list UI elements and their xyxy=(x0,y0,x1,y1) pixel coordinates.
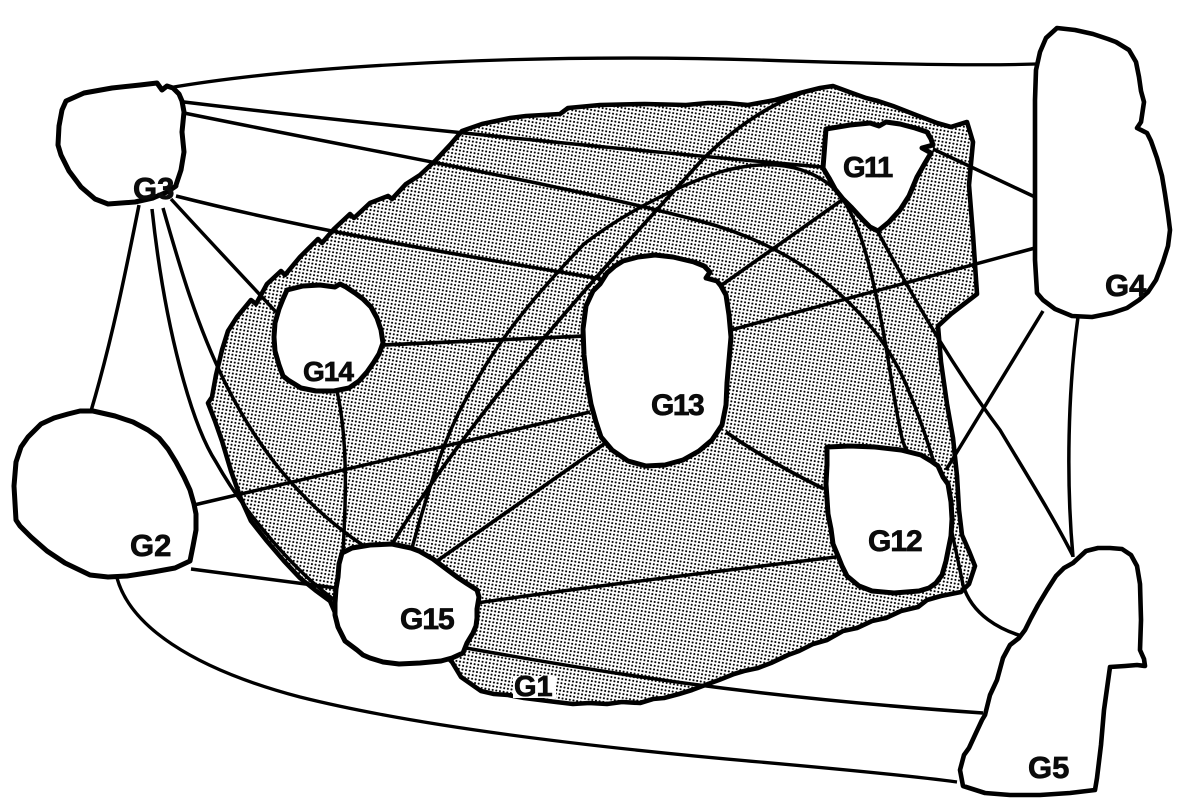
svg-text:G12: G12 xyxy=(868,525,922,558)
svg-text:G11: G11 xyxy=(843,152,893,184)
svg-text:G3: G3 xyxy=(133,171,174,206)
svg-text:G2: G2 xyxy=(130,528,171,563)
svg-text:G15: G15 xyxy=(400,603,454,636)
svg-text:G1: G1 xyxy=(514,671,553,703)
svg-text:G4: G4 xyxy=(1105,268,1147,303)
svg-text:G5: G5 xyxy=(1028,750,1069,785)
svg-text:G14: G14 xyxy=(303,356,354,387)
svg-text:G13: G13 xyxy=(651,389,704,422)
